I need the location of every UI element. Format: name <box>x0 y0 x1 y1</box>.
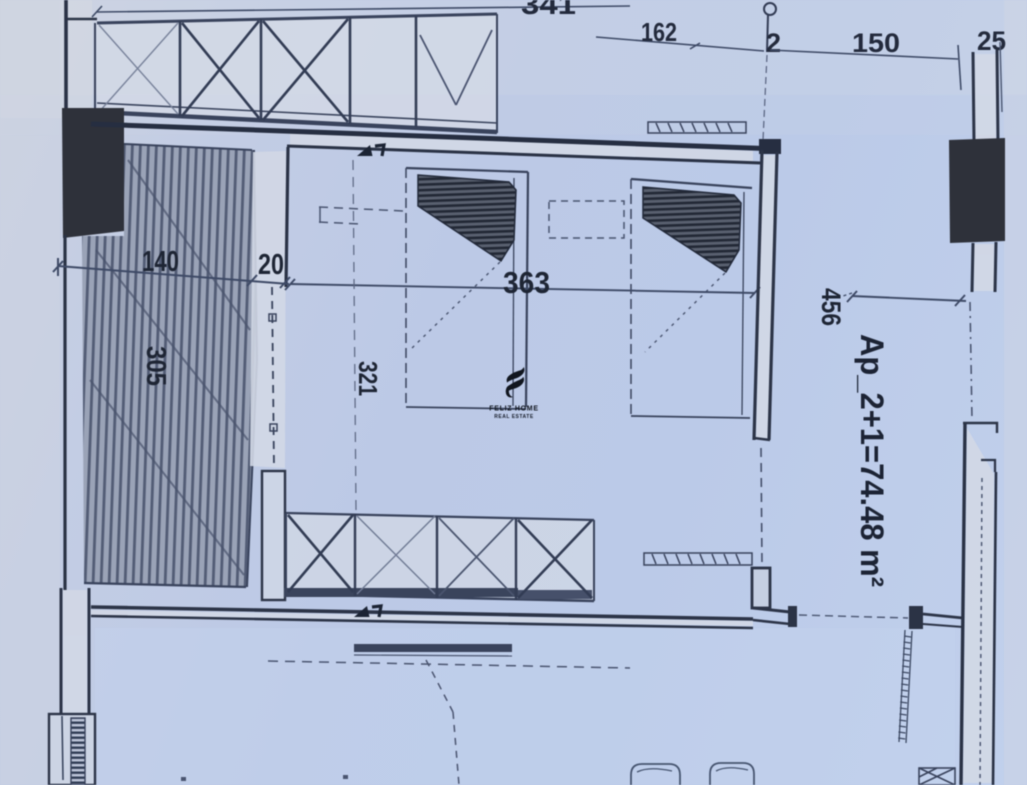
svg-text:341: 341 <box>521 0 576 20</box>
svg-text:FELIZ HOME: FELIZ HOME <box>489 406 538 413</box>
svg-text:25: 25 <box>977 26 1006 56</box>
svg-text:20: 20 <box>258 249 284 281</box>
svg-text:140: 140 <box>142 246 179 278</box>
svg-text:162: 162 <box>641 17 677 47</box>
svg-text:363: 363 <box>503 265 550 300</box>
svg-text:321: 321 <box>353 361 383 396</box>
svg-text:305: 305 <box>141 346 172 386</box>
svg-text:456: 456 <box>816 288 846 326</box>
svg-text:REAL ESTATE: REAL ESTATE <box>494 414 534 420</box>
svg-text:Ap_2+1=74.48 m²: Ap_2+1=74.48 m² <box>854 334 890 587</box>
svg-text:2: 2 <box>766 28 781 58</box>
svg-text:150: 150 <box>852 28 900 58</box>
